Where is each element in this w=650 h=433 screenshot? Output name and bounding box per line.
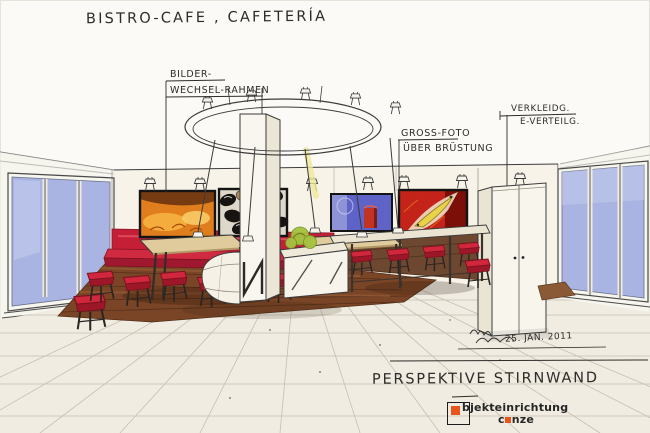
callout-electrical-line1: VERKLEIDG. [511,104,570,114]
callout-electrical-line2: E-VERTEILG. [520,117,580,127]
callout-picture-frames-line1: BILDER- [170,69,212,80]
cabinet-knob [522,256,525,259]
logo-square-icon [451,406,460,415]
page-title: BISTRO-CAFE , CAFETERÍA [86,9,327,28]
callout-picture-frames-line2: WECHSEL-RAHMEN [170,85,269,96]
logo-word-2: cnze [498,413,534,426]
logo-word2-post: nze [512,413,534,426]
cabinet-knob [514,257,517,260]
logo-dot-icon [505,417,511,423]
sketch-page: BISTRO-CAFE , CAFETERÍA BILDER- WECHSEL-… [0,0,650,433]
logo-word2-pre: c [498,413,505,426]
callout-large-photo-line2: ÜBER BRÜSTUNG [403,143,493,154]
perspective-sketch [0,0,650,433]
drawing-caption: PERSPEKTIVE STIRNWAND [372,370,599,388]
callout-large-photo-line1: GROSS-FOTO [401,128,470,139]
right-window [556,146,650,312]
red-fruit-panel [399,190,467,232]
fireplace-panel [140,191,215,237]
